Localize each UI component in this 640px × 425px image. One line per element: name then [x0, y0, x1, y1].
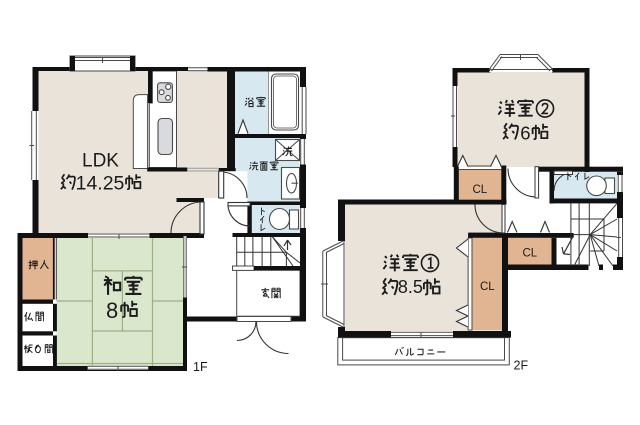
svg-text:8.5: 8.5	[398, 277, 423, 297]
svg-text:CL: CL	[473, 184, 488, 196]
svg-text:CL: CL	[523, 248, 538, 260]
svg-text:1F: 1F	[193, 360, 208, 374]
svg-text:LDK: LDK	[82, 151, 119, 172]
svg-text:8: 8	[106, 298, 118, 323]
svg-text:CL: CL	[480, 281, 495, 293]
svg-text:14.25: 14.25	[76, 173, 125, 195]
svg-text:6: 6	[520, 123, 530, 144]
svg-text:2F: 2F	[514, 359, 529, 373]
